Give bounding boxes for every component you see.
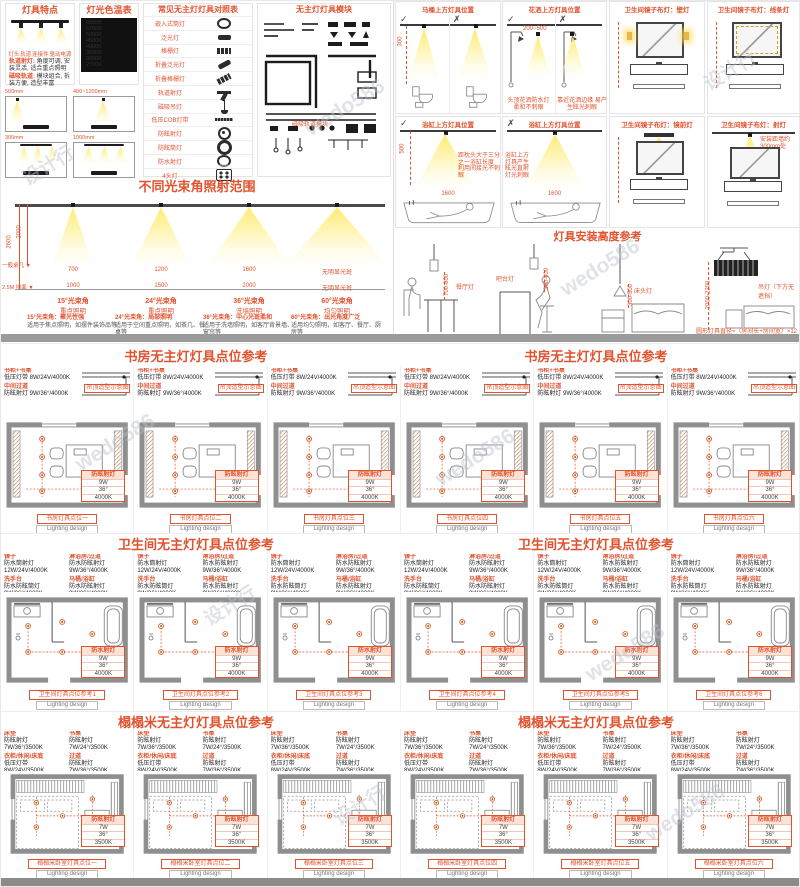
tatami-plan-cells: 床垫 防眩射灯 7W/36°/3500K 书桌 防眩射灯 7W/24°/3500… <box>1 729 800 879</box>
legend-row: 磁吸吊灯 <box>144 99 252 113</box>
legend-row: 防眩射灯 <box>144 126 252 140</box>
dim-height: 500 <box>400 143 407 153</box>
scene-label: 吊灯（下方无遮挡） <box>758 282 798 300</box>
callout-title: 防眩射灯 <box>216 816 258 824</box>
mirror-linear-lamp-cell: 卫生间镜子布灯：线条灯 <box>707 1 800 114</box>
row-heading: 卫生间无主灯灯具点位参考 <box>56 534 336 553</box>
callout-row: 4000K <box>82 494 124 502</box>
lamp-icon <box>444 131 448 135</box>
dim-label: 700-800 <box>444 274 450 296</box>
study-plan-cells: 书柜+书桌 低压灯带 8W/24V/4000K 中间过道 防眩射灯 9W/36°… <box>1 366 800 534</box>
fixture-icon <box>218 35 231 40</box>
elevation-drawing <box>613 368 664 398</box>
callout-row: 9W <box>749 655 791 663</box>
legend-row: 泛光灯 <box>144 30 252 44</box>
callout-row: 36° <box>482 662 524 670</box>
elevation-drawing <box>346 368 397 398</box>
annotation-label: 中间过道 <box>271 384 347 391</box>
shelf <box>633 199 685 204</box>
plan-caption: 卫生间灯具点位参考4 Lighting design <box>404 688 530 710</box>
tap-icon <box>752 62 758 65</box>
fixture-callout: 防眩射灯 7W 36° 3500K <box>81 815 125 848</box>
fixture-callout: 防眩射灯 7W 36° 3500K <box>748 815 792 848</box>
floor-plan: 防眩射灯 9W 36° 4000K <box>271 418 397 512</box>
annotation-spec: 防水防眩射灯 9W/36°/4000K <box>736 584 797 592</box>
note-label: 轨道射灯: <box>9 59 35 65</box>
track-bar <box>20 144 52 146</box>
fixture-callout: 防眩射灯 9W 36° 4000K <box>348 470 392 503</box>
caption-sub: Lighting design <box>569 701 631 710</box>
bathroom-plan-cell: 镜子 防水筒射灯 12W/24V/4000K 淋浴房/过道 防水防眩射灯 9W/… <box>668 552 800 712</box>
lighting-design-reference-sheet: 灯具特点 灯头 轨道 连接件 驱动电源 轨道射灯: 角度可调, 安装灵活, 适合… <box>0 0 800 887</box>
annotation-block: 书柜+书桌 低压灯带 8W/24V/4000K 中间过道 防眩射灯 9W/36°… <box>4 368 130 418</box>
annotation-label: 淋浴房/过道 <box>736 554 797 561</box>
room-dim: 500mm <box>5 89 67 96</box>
part-labels: 灯头 轨道 连接件 驱动电源 <box>8 50 72 58</box>
ceiling-elevation: 吊顶造型示意图 <box>613 368 664 418</box>
annotation-block: 书柜+书桌 低压灯带 8W/24V/4000K 中间过道 防眩射灯 9W/36°… <box>137 368 263 418</box>
cell-title: 花洒上方灯具位置 <box>503 4 606 14</box>
fixture-icon <box>215 118 233 121</box>
annotation-spec: 低压灯带 8W/24V/3500K <box>671 761 732 771</box>
shower-lamp-position-cell: 花洒上方灯具位置 ✓ ✗ 200~500 头顶花洒防水灯 柔和不刺眼 靠近花洒边… <box>502 1 607 114</box>
ceiling-elevation: 吊顶造型示意图 <box>346 368 397 418</box>
annotation-spec: 防眩射灯 7W/24°/3500K <box>736 738 797 752</box>
light-cone <box>408 28 440 80</box>
fixture-icon <box>218 127 231 140</box>
fixture-icon <box>217 18 231 29</box>
fixture-icon-cell <box>196 76 252 82</box>
study-plan-cell: 书柜+书桌 低压灯带 8W/24V/4000K 中间过道 防眩射灯 9W/36°… <box>268 366 401 534</box>
annotation-pair: 洗手台 防水防眩筒灯 9W/36°/4000K <box>271 577 332 592</box>
scene-label: 吧台灯 <box>496 274 514 283</box>
fixture-icon-cell <box>196 62 252 67</box>
cell-title: 浴缸上方灯具位置 <box>503 119 606 129</box>
annotation-pair: 衣柜/休闲/床底 低压灯带 8W/24V/3500K <box>537 754 598 771</box>
dim-label: 200~500 <box>523 26 547 33</box>
annotation-label: 衣柜/休闲/床底 <box>137 754 198 761</box>
bathtub-bad-cell: ✗ 浴缸上方灯具位置 浴缸上方灯具产生眩光直射 灯光刺眼 1600 <box>502 116 607 228</box>
scene-label: 餐厅灯 <box>456 282 474 291</box>
callout-row: 7W <box>82 824 124 832</box>
callout-row: 36° <box>482 831 524 839</box>
fixture-icon-cell <box>196 127 252 140</box>
ceiling-elevation: 吊顶造型示意图 <box>746 368 797 418</box>
bathroom-plan-cell: 镜子 防水筒射灯 12W/24V/4000K 淋浴房/过道 防水防眩射灯 9W/… <box>401 552 534 712</box>
annotation-label: 淋浴房/过道 <box>602 554 663 561</box>
annotation-spec: 防眩射灯 9W/36°/4000K <box>537 391 613 398</box>
panel-title: 常见无主灯灯具对照表 <box>144 4 252 16</box>
plan-caption: 卫生间灯具点位参考1 Lighting design <box>4 688 130 710</box>
beam-item: 1600 2000 36°光束角 洗墙照明 36°光束角：中心光斑柔和 适用于洗… <box>205 204 293 339</box>
annotation-pair: 马桶/浴缸 防水防眩射灯 9W/36°/4000K <box>602 577 663 592</box>
annotation-label: 床垫 <box>4 731 65 738</box>
callout-row: 7W <box>349 824 391 832</box>
annotation-pair: 中间过道 防眩射灯 9W/36°/4000K <box>4 384 80 398</box>
row-heading: 书房无主灯灯具点位参考 <box>56 346 336 365</box>
beam-item: 1200 1500 24°光束角 重点照明 24°光束角：局部照明 适用于空间重… <box>117 204 205 339</box>
annotation-label: 淋浴房/过道 <box>336 554 397 561</box>
annotation-spec: 防水防眩射灯 9W/36°/4000K <box>602 561 663 575</box>
annotation-spec: 防眩射灯 7W/36°/3500K <box>137 738 198 752</box>
tatami-plan-cell: 床垫 防眩射灯 7W/36°/3500K 书桌 防眩射灯 7W/24°/3500… <box>401 729 534 879</box>
ceiling-note-tag: 吊顶造型示意图 <box>618 384 664 393</box>
fixture-name: 格栅灯 <box>144 46 196 55</box>
annotation-pair: 书桌 防眩射灯 7W/24°/3500K <box>336 731 397 752</box>
room-box <box>5 142 67 178</box>
annotation-spec: 防水防眩射灯 9W/36°/4000K <box>602 584 663 592</box>
callout-row: 7W <box>749 824 791 832</box>
annotation-block: 书柜+书桌 低压灯带 8W/24V/4000K 中间过道 防眩射灯 9W/36°… <box>671 368 797 418</box>
callout-title: 防眩射灯 <box>82 816 124 824</box>
legend-row: 低压COB灯带 <box>144 113 252 127</box>
annotation-spec: 防水筒射灯 12W/24V/4000K <box>271 561 332 575</box>
room-example: 400~1200mm <box>73 89 135 133</box>
floor-plan: 防眩射灯 7W 36° 3500K <box>137 771 263 857</box>
annotation-pair: 洗手台 防水防眩筒灯 9W/36°/4000K <box>671 577 732 592</box>
callout-row: 36° <box>216 662 258 670</box>
annotation-spec: 防眩射灯 9W/36°/4000K <box>271 391 347 398</box>
annotation-pair: 衣柜/休闲/床底 低压灯带 8W/24V/3500K <box>4 754 65 771</box>
callout-row: 36° <box>349 662 391 670</box>
annotation-pair: 床垫 防眩射灯 7W/36°/3500K <box>4 731 65 752</box>
light-cone <box>98 146 111 164</box>
annotation-spec: 防水筒射灯 12W/24V/4000K <box>671 561 732 575</box>
callout-row: 36° <box>216 831 258 839</box>
annotation-block: 镜子 防水筒射灯 12W/24V/4000K 淋浴房/过道 防水防眩射灯 9W/… <box>537 554 663 592</box>
panel-title: 灯光色温表 <box>80 4 138 16</box>
annotation-label: 书柜+书桌 <box>137 368 213 375</box>
lamp-icon <box>16 98 19 101</box>
dim-line <box>406 26 407 84</box>
track-lamp-icon <box>19 23 23 28</box>
callout-row: 9W <box>216 479 258 487</box>
annotation-spec: 低压灯带 8W/24V/4000K <box>404 375 480 382</box>
annotation-spec: 防眩射灯 9W/36°/4000K <box>4 391 80 398</box>
callout-title: 防水射灯 <box>216 647 258 655</box>
beam-use-label: 洗墙照明 <box>205 305 293 315</box>
caption-box: 榻榻米卧室灯具点位二 <box>161 859 239 869</box>
floor-plan: 防眩射灯 9W 36° 4000K <box>4 418 130 512</box>
annotation-pair: 马桶/浴缸 防水防眩射灯 9W/36°/4000K <box>69 577 130 592</box>
annotation-pair: 洗手台 防水防眩筒灯 9W/36°/4000K <box>537 577 598 592</box>
mirror <box>732 22 782 58</box>
annotation-spec: 低压灯带 8W/24V/3500K <box>4 761 65 771</box>
annotation-label: 洗手台 <box>137 577 198 584</box>
shower-drawing <box>507 28 525 90</box>
fixture-name: 泛光灯 <box>144 33 196 42</box>
annotation-spec: 防眩射灯 7W/36°/3500K <box>404 738 465 752</box>
annotation-label: 书桌 <box>736 731 797 738</box>
fixture-icon-cell <box>196 48 252 54</box>
light-cone <box>34 28 48 44</box>
beam-item: 无明显光斑 无明显光斑 60°光束角 均匀照明 60°光束角：出光角度广泛 适用… <box>293 204 381 339</box>
annotation-spec: 防水防眩射灯 9W/36°/4000K <box>202 561 263 575</box>
annotation-spec: 防水筒射灯 12W/24V/4000K <box>4 561 65 575</box>
vanity-counter <box>726 64 784 75</box>
bathtub-person-drawing <box>509 197 602 224</box>
callout-row: 36° <box>616 486 658 494</box>
cross-mark: ✗ <box>507 118 515 129</box>
caption-sub: Lighting design <box>303 701 365 710</box>
mirror <box>636 22 684 58</box>
fixture-name: 防眩射灯 <box>144 129 196 138</box>
floor-plan: 防水射灯 9W 36° 4000K <box>271 592 397 688</box>
spot-width-table: 700 <box>29 267 117 273</box>
callout-row: 4000K <box>216 494 258 502</box>
fixture-name: 防水射灯 <box>144 157 196 166</box>
callout-row: 9W <box>616 655 658 663</box>
scene-note: 浴缸上方灯具产生眩光直射 灯光刺眼 <box>505 153 531 179</box>
ceiling-line <box>712 132 795 134</box>
annotation-pair: 书柜+书桌 低压灯带 8W/24V/4000K <box>271 368 347 382</box>
annotation-label: 床垫 <box>671 731 732 738</box>
plan-caption: 卫生间灯具点位参考2 Lighting design <box>137 688 263 710</box>
annotation-pairs: 书柜+书桌 低压灯带 8W/24V/4000K 中间过道 防眩射灯 9W/36°… <box>671 368 747 418</box>
annotation-label: 床垫 <box>271 731 332 738</box>
room-dim: 400~1200mm <box>73 89 135 96</box>
annotation-spec: 低压灯带 8W/24V/4000K <box>137 375 213 382</box>
caption-box: 书房灯具点位四 <box>437 514 497 524</box>
plan-caption: 书房灯具点位三 Lighting design <box>271 512 397 534</box>
module-caption: 磁吸轨道模块 <box>292 122 328 129</box>
lamp-icon <box>159 203 163 207</box>
spot-width-floor: 2000 <box>205 283 293 289</box>
annotation-block: 书柜+书桌 低压灯带 8W/24V/4000K 中间过道 防眩射灯 9W/36°… <box>404 368 530 418</box>
annotation-label: 书桌 <box>602 731 663 738</box>
fixture-callout: 防眩射灯 7W 36° 3500K <box>615 815 659 848</box>
mirror-wall-lamp-cell: 卫生间镜子布灯：壁灯 <box>609 1 705 114</box>
annotation-label: 中间过道 <box>671 384 747 391</box>
annotation-pair: 马桶/浴缸 防水防眩射灯 9W/36°/4000K <box>336 577 397 592</box>
callout-title: 防水射灯 <box>616 647 658 655</box>
study-plan-row: 书房无主灯灯具点位参考 书房无主灯灯具点位参考 书柜+书桌 低压灯带 8W/24… <box>1 343 800 534</box>
ceiling-elevation: 吊顶造型示意图 <box>80 368 131 418</box>
panel-title: 无主灯灯具模块 <box>258 4 390 16</box>
legend-row: 轨道射灯 <box>144 85 252 99</box>
light-cone <box>14 28 28 44</box>
cross-mark: ✗ <box>453 14 461 25</box>
caption-box: 书房灯具点位一 <box>37 514 97 524</box>
callout-row: 4000K <box>749 494 791 502</box>
annotation-spec: 防眩射灯 9W/36°/4000K <box>404 391 480 398</box>
room-dim: 1000mm <box>73 135 135 142</box>
study-plan-cell: 书柜+书桌 低压灯带 8W/24V/4000K 中间过道 防眩射灯 9W/36°… <box>134 366 267 534</box>
caption-box: 卫生间灯具点位参考6 <box>696 690 771 700</box>
annotation-label: 过道 <box>336 754 397 761</box>
fixture-name: 轨道射灯 <box>144 88 196 97</box>
annotation-spec: 低压灯带 8W/24V/4000K <box>4 375 80 382</box>
annotation-spec: 防水防眩射灯 9W/36°/4000K <box>336 584 397 592</box>
caption-box: 书房灯具点位五 <box>570 514 630 524</box>
callout-title: 防眩射灯 <box>349 471 391 479</box>
color-bar: 2700K <box>84 63 134 68</box>
bottom-bar <box>1 878 800 887</box>
lamp-icon <box>335 203 339 207</box>
callout-title: 防水射灯 <box>349 647 391 655</box>
note-label: 磁吸轨道: <box>9 74 35 80</box>
annotation-label: 镜子 <box>271 554 332 561</box>
caption-box: 卫生间灯具点位参考1 <box>29 690 104 700</box>
fixture-name: 折叠格栅灯 <box>144 74 196 83</box>
floor-plan: 防眩射灯 7W 36° 3500K <box>271 771 397 857</box>
fixture-icon <box>224 100 225 112</box>
fixture-icon-cell <box>196 155 252 167</box>
bathroom-plan-cell: 镜子 防水筒射灯 12W/24V/4000K 淋浴房/过道 防水防眩射灯 9W/… <box>1 552 134 712</box>
beam-use-label: 重点照明 <box>29 305 117 315</box>
caption-box: 卫生间灯具点位参考5 <box>563 690 638 700</box>
ceiling-line <box>400 130 496 132</box>
annotation-spec: 防水防眩射灯 9W/36°/4000K <box>69 584 130 592</box>
annotation-label: 过道 <box>69 754 130 761</box>
annotation-spec: 防水防眩射灯 9W/36°/4000K <box>469 561 530 575</box>
annotation-pair: 过道 防眩射灯 7W/36°/3500K <box>602 754 663 771</box>
callout-row: 36° <box>749 662 791 670</box>
ceiling-note-tag: 吊顶造型示意图 <box>84 384 130 393</box>
plan-caption: 卫生间灯具点位参考3 Lighting design <box>271 688 397 710</box>
wall-sconce <box>684 32 689 40</box>
ceiling-note-tag: 吊顶造型示意图 <box>484 384 530 393</box>
annotation-pair: 淋浴房/过道 防水防眩射灯 9W/36°/4000K <box>602 554 663 575</box>
annotation-spec: 防水防眩筒灯 9W/36°/4000K <box>404 584 465 592</box>
annotation-spec: 防眩射灯 7W/24°/3500K <box>336 738 397 752</box>
annotation-spec: 防眩射灯 7W/36°/3500K <box>271 738 332 752</box>
annotation-label: 镜子 <box>4 554 65 561</box>
toilet-lamp-position-cell: 马桶上方灯具位置 ✓ ✗ 300 <box>395 1 501 114</box>
annotation-pair: 书柜+书桌 低压灯带 8W/24V/4000K <box>537 368 613 382</box>
annotation-spec: 低压灯带 8W/24V/3500K <box>537 761 598 771</box>
fixture-callout: 防眩射灯 9W 36° 4000K <box>615 470 659 503</box>
annotation-label: 书桌 <box>202 731 263 738</box>
callout-row: 4000K <box>349 670 391 678</box>
annotation-pair: 书柜+书桌 低压灯带 8W/24V/4000K <box>4 368 80 382</box>
cell-title: 卫生间镜子布灯：线条灯 <box>708 4 799 14</box>
room-example: 300mm <box>5 135 67 179</box>
lamp-icon <box>71 203 75 207</box>
mirror <box>730 147 780 179</box>
annotation-label: 洗手台 <box>271 577 332 584</box>
annotation-label: 床垫 <box>404 731 465 738</box>
annotation-spec: 防眩射灯 7W/24°/3500K <box>202 738 263 752</box>
plan-caption: 书房灯具点位六 Lighting design <box>671 512 797 534</box>
annotation-spec: 低压灯带 8W/24V/4000K <box>671 375 747 382</box>
plan-caption: 书房灯具点位四 Lighting design <box>404 512 530 534</box>
installation-height-section: 灯具安装高度参考 700-800 餐厅灯 300-400 <box>394 230 800 334</box>
study-plan-cell: 书柜+书桌 低压灯带 8W/24V/4000K 中间过道 防眩射灯 9W/36°… <box>1 366 134 534</box>
annotation-label: 衣柜/休闲/床底 <box>271 754 332 761</box>
annotation-pair: 床垫 防眩射灯 7W/36°/3500K <box>537 731 598 752</box>
callout-row: 4000K <box>82 670 124 678</box>
light-cone <box>207 207 291 267</box>
callout-title: 防眩射灯 <box>216 471 258 479</box>
fixture-icon <box>217 91 231 94</box>
annotation-pair: 镜子 防水筒射灯 12W/24V/4000K <box>4 554 65 575</box>
fixture-callout: 防水射灯 9W 36° 4000K <box>215 646 259 679</box>
fixture-callout: 防眩射灯 9W 36° 4000K <box>748 470 792 503</box>
plan-caption: 榻榻米卧室灯具点位四 Lighting design <box>404 857 530 879</box>
annotation-block: 镜子 防水筒射灯 12W/24V/4000K 淋浴房/过道 防水防眩射灯 9W/… <box>137 554 263 592</box>
callout-row: 9W <box>482 655 524 663</box>
callout-row: 3500K <box>616 839 658 847</box>
fixture-callout: 防眩射灯 9W 36° 4000K <box>215 470 259 503</box>
section-title: 不同光束角照射范围 <box>1 179 393 195</box>
annotation-pair: 衣柜/休闲/床底 低压灯带 8W/24V/3500K <box>137 754 198 771</box>
legend-row: 折叠泛光灯 <box>144 57 252 71</box>
drum-pendant-scene: 2000-2200 吊灯（下方无遮挡） <box>692 240 800 334</box>
fixture-bar <box>23 125 49 129</box>
elevation-drawing <box>80 368 131 398</box>
tatami-plan-cell: 床垫 防眩射灯 7W/36°/3500K 书桌 防眩射灯 7W/24°/3500… <box>134 729 267 879</box>
annotation-label: 书柜+书桌 <box>537 368 613 375</box>
callout-row: 36° <box>349 486 391 494</box>
fixture-icon <box>217 140 232 155</box>
callout-row: 9W <box>349 655 391 663</box>
annotation-label: 淋浴房/过道 <box>69 554 130 561</box>
annotation-label: 镜子 <box>537 554 598 561</box>
callout-row: 7W <box>482 824 524 832</box>
ceiling-elevation: 吊顶造型示意图 <box>480 368 531 418</box>
annotation-label: 镜子 <box>671 554 732 561</box>
annotation-pair: 书柜+书桌 低压灯带 8W/24V/4000K <box>404 368 480 382</box>
tap-icon <box>656 177 662 180</box>
annotation-block: 书柜+书桌 低压灯带 8W/24V/4000K 中间过道 防眩射灯 9W/36°… <box>271 368 397 418</box>
cell-title: 卫生间镜子布灯：壁灯 <box>610 4 704 14</box>
callout-row: 7W <box>216 824 258 832</box>
track-lamp-icon <box>39 23 43 28</box>
light-cone <box>82 146 95 164</box>
caption-box: 榻榻米卧室灯具点位六 <box>695 859 773 869</box>
ceiling-note-tag: 吊顶造型示意图 <box>751 384 797 393</box>
toilet-bad-scene <box>449 14 502 113</box>
annotation-pair: 书桌 防眩射灯 7W/24°/3500K <box>202 731 263 752</box>
callout-row: 4000K <box>216 670 258 678</box>
annotation-pair: 过道 防眩射灯 7W/36°/3500K <box>69 754 130 771</box>
annotation-label: 镜子 <box>137 554 198 561</box>
fixture-callout: 防眩射灯 7W 36° 3500K <box>348 815 392 848</box>
dim-ruler <box>618 22 619 88</box>
axis-line <box>19 204 20 289</box>
annotation-block: 镜子 防水筒射灯 12W/24V/4000K 淋浴房/过道 防水防眩射灯 9W/… <box>271 554 397 592</box>
annotation-pair: 过道 防眩射灯 7W/36°/3500K <box>336 754 397 771</box>
plan-caption: 榻榻米卧室灯具点位三 Lighting design <box>271 857 397 879</box>
legend-row: 嵌入式筒灯 <box>144 16 252 30</box>
annotation-label: 书柜+书桌 <box>4 368 80 375</box>
caption-sub: Lighting design <box>436 701 498 710</box>
floor-plan: 防眩射灯 7W 36° 3500K <box>537 771 663 857</box>
annotation-label: 书桌 <box>336 731 397 738</box>
light-cone <box>525 134 585 190</box>
legend-row: 防眩筒灯 <box>144 140 252 154</box>
annotation-spec: 防水防眩筒灯 9W/36°/4000K <box>137 584 198 592</box>
annotation-label: 中间过道 <box>4 384 80 391</box>
callout-row: 3500K <box>482 839 524 847</box>
spot-width-table: 无明显光斑 <box>293 267 381 276</box>
scene-note: 头顶花洒防水灯 柔和不刺眼 <box>504 98 553 111</box>
light-cone <box>525 36 551 78</box>
annotation-pair: 衣柜/休闲/床底 低压灯带 8W/24V/3500K <box>404 754 465 771</box>
lamp-icon <box>570 32 574 36</box>
annotation-spec: 防水防眩筒灯 9W/36°/4000K <box>271 584 332 592</box>
annotation-spec: 防眩射灯 7W/36°/3500K <box>336 761 397 771</box>
tatami-plan-cell: 床垫 防眩射灯 7W/36°/3500K 书桌 防眩射灯 7W/24°/3500… <box>534 729 667 879</box>
light-cone <box>285 207 389 267</box>
part-label: 轨道 <box>20 50 31 58</box>
annotation-pairs: 书柜+书桌 低压灯带 8W/24V/4000K 中间过道 防眩射灯 9W/36°… <box>537 368 613 418</box>
fixture-icon-cell <box>196 91 252 94</box>
plan-caption: 榻榻米卧室灯具点位五 Lighting design <box>537 857 663 879</box>
beam-note: 36°光束角：中心光斑柔和 <box>203 315 297 322</box>
annotation-pair: 洗手台 防水防眩筒灯 9W/36°/4000K <box>404 577 465 592</box>
